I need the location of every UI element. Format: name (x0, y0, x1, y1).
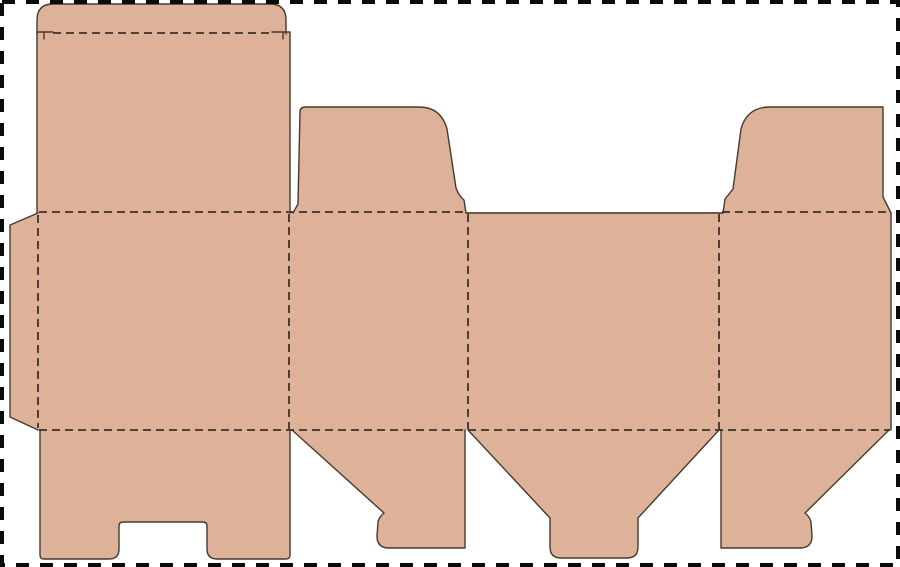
dust-flap-right (723, 107, 891, 214)
top-closure-panel (37, 32, 290, 214)
tuck-flap (37, 4, 286, 34)
dust-flap-left (293, 107, 466, 214)
board-fills (10, 4, 891, 559)
dieline-canvas (0, 0, 900, 567)
walls-band (38, 212, 891, 430)
bottom-lock-flap (468, 429, 719, 558)
dieline-drawing (0, 0, 900, 567)
bottom-flap-right (721, 429, 889, 548)
glue-tab (10, 213, 38, 430)
bottom-closure-panel (40, 429, 290, 559)
bottom-flap-left (292, 429, 465, 548)
